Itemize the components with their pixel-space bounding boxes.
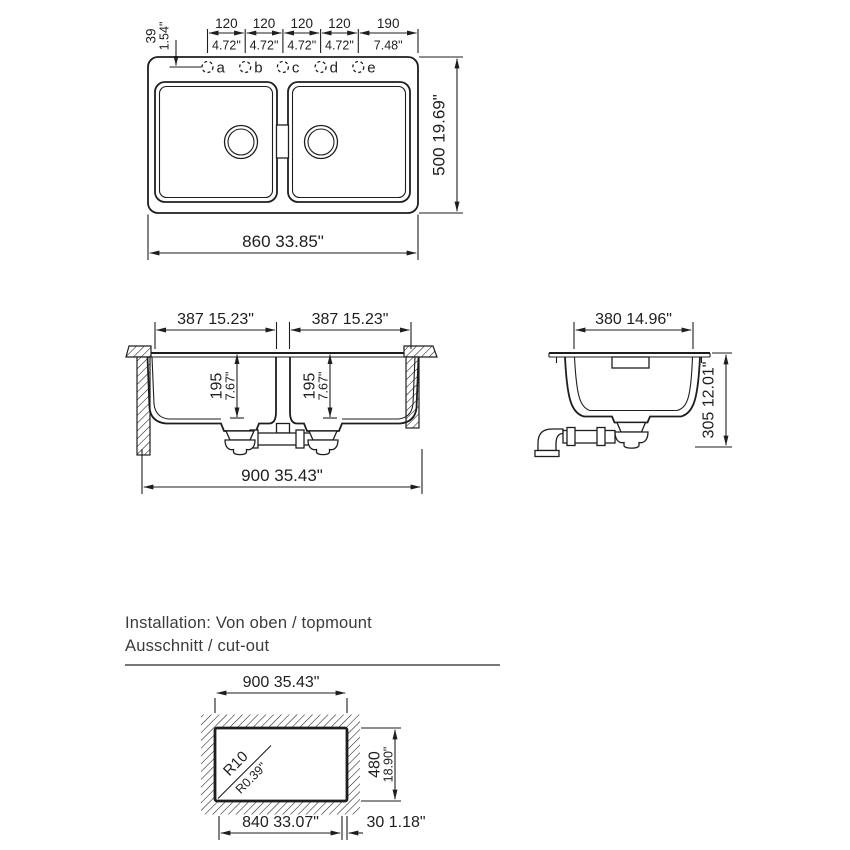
- tap-holes: [202, 62, 364, 73]
- installation-line-1: Installation: Von oben / topmount: [125, 612, 372, 635]
- tap-hole-d-icon: [315, 62, 326, 73]
- left-clamp-top: [126, 346, 151, 357]
- bowl-wall-inner-lines: [152, 357, 415, 419]
- drawing-svg: a b c d e 120 120 120 120 190 4.72" 4.72…: [0, 0, 850, 850]
- dim-spacing-mm-5: 190: [377, 16, 400, 31]
- cutout-hatch-left: [201, 715, 215, 815]
- tap-hole-label-c: c: [292, 60, 300, 77]
- dim-spacing-in-2: 4.72": [250, 39, 279, 53]
- dim-spacing-mm-4: 120: [328, 16, 351, 31]
- pipe-nut-right: [296, 430, 304, 448]
- left-strainer: [226, 431, 254, 440]
- dim-edge-offset: 30 1.18": [367, 814, 426, 831]
- dim-hole-offset-mm: 39: [144, 28, 159, 43]
- dim-left-depth-in: 7.67": [224, 372, 238, 401]
- right-strainer: [309, 431, 337, 440]
- installation-line-2: Ausschnitt / cut-out: [125, 635, 372, 658]
- side-pipe-nut-2: [597, 428, 605, 446]
- dim-spacing-in-5: 7.48": [374, 39, 403, 53]
- sink-technical-drawing: a b c d e 120 120 120 120 190 4.72" 4.72…: [0, 0, 850, 850]
- dim-spacing-mm-2: 120: [253, 16, 276, 31]
- side-trap-bell: [615, 432, 648, 448]
- dim-spacing-in-4: 4.72": [325, 39, 354, 53]
- dim-overall-width: 860 33.85": [242, 232, 324, 251]
- side-pipe-nut-1: [567, 428, 575, 446]
- dim-right-depth-in: 7.67": [317, 372, 331, 401]
- cutout-hatch-bottom: [201, 801, 360, 815]
- overflow-connector: [277, 424, 290, 434]
- dim-spacing-mm-3: 120: [291, 16, 314, 31]
- cutout-width-extension-lines: [215, 698, 347, 713]
- tap-hole-b-icon: [240, 62, 251, 73]
- dim-right-bowl-width: 387 15.23": [312, 311, 389, 328]
- left-bowl-outline: [155, 82, 277, 202]
- dim-left-bowl-width: 387 15.23": [177, 311, 254, 328]
- side-view: 380 14.96" 305 12.01": [535, 311, 732, 457]
- tap-hole-label-d: d: [330, 60, 338, 77]
- top-view: a b c d e 120 120 120 120 190 4.72" 4.72…: [144, 16, 464, 260]
- drain-elbow: [538, 429, 563, 451]
- overflow-opening: [612, 357, 649, 368]
- dim-overall-depth: 500 19.69": [430, 94, 449, 176]
- tap-hole-label-e: e: [367, 60, 375, 77]
- right-trap-bell: [308, 440, 338, 455]
- dim-spacing-in-3: 4.72": [287, 39, 316, 53]
- dim-cutout-inner-width: 840 33.07": [242, 814, 319, 831]
- bowl-divider-bridge: [277, 125, 289, 158]
- tap-hole-label-b: b: [254, 60, 262, 77]
- side-strainer: [617, 423, 646, 433]
- dim-spacing-in-1: 4.72": [212, 39, 241, 53]
- dim-side-width: 380 14.96": [595, 311, 672, 328]
- dim-side-height: 305 12.01": [701, 362, 718, 439]
- drain-outlet-flange: [535, 451, 559, 457]
- front-view: 387 15.23" 387 15.23" 195 7.67" 195 7.67…: [126, 311, 437, 494]
- tap-hole-c-icon: [277, 62, 288, 73]
- right-clamp-top: [404, 346, 437, 357]
- tap-hole-label-a: a: [217, 60, 226, 77]
- cutout-view: R10 R0.39" 900 35.43" 480 18.90" 840 33.…: [125, 665, 500, 840]
- left-trap-bell: [225, 440, 255, 455]
- cutout-hatch-top: [201, 715, 360, 729]
- tap-hole-a-icon: [202, 62, 213, 73]
- dim-cutout-width: 900 35.43": [243, 674, 320, 691]
- dim-hole-offset-in: 1.54": [158, 22, 172, 51]
- dim-spacing-mm-1: 120: [215, 16, 238, 31]
- dim-cutout-height-in: 18.90": [382, 747, 396, 783]
- right-drain-icon: [305, 126, 338, 159]
- dim-overall: 900 35.43": [241, 466, 323, 485]
- installation-note: Installation: Von oben / topmount Aussch…: [125, 612, 372, 658]
- left-drain-icon: [225, 126, 258, 159]
- tap-hole-e-icon: [353, 62, 364, 73]
